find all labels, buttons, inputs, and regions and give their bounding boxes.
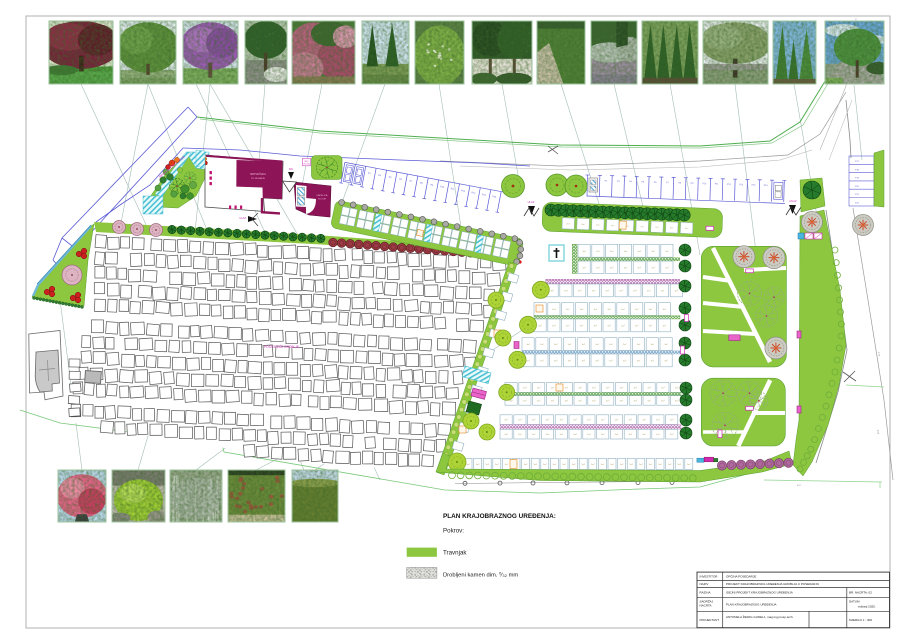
svg-text:3m²: 3m² — [543, 463, 547, 466]
svg-text:3m²: 3m² — [658, 463, 662, 466]
svg-text:3m²: 3m² — [537, 399, 541, 402]
svg-text:2m²: 2m² — [670, 226, 674, 229]
svg-text:3m²: 3m² — [504, 419, 508, 422]
svg-text:3m²: 3m² — [647, 399, 651, 402]
svg-text:3m²: 3m² — [573, 419, 577, 422]
svg-text:3m²: 3m² — [582, 266, 586, 269]
svg-text:3m²: 3m² — [665, 250, 669, 253]
svg-text:3m²: 3m² — [651, 250, 655, 253]
svg-text:3m²: 3m² — [687, 463, 691, 466]
svg-text:PROJEKTANT: PROJEKTANT — [700, 618, 720, 622]
svg-text:3m²: 3m² — [568, 343, 572, 346]
svg-text:3m²: 3m² — [560, 419, 564, 422]
svg-text:3m²: 3m² — [675, 399, 679, 402]
svg-text:3m²: 3m² — [615, 419, 619, 422]
svg-text:3m²: 3m² — [537, 387, 541, 390]
svg-text:3m²: 3m² — [637, 359, 641, 362]
svg-text:NACRTA: NACRTA — [700, 604, 712, 608]
svg-text:3m²: 3m² — [634, 399, 638, 402]
svg-text:PO SEDARJE: PO SEDARJE — [251, 177, 265, 180]
svg-text:2m²: 2m² — [640, 225, 644, 228]
svg-text:3m²: 3m² — [551, 399, 555, 402]
svg-text:3m²: 3m² — [540, 359, 544, 362]
svg-text:3m²: 3m² — [642, 419, 646, 422]
svg-text:3m²: 3m² — [578, 289, 582, 292]
svg-text:3m²: 3m² — [610, 266, 614, 269]
svg-text:BR. NACRTA: 02: BR. NACRTA: 02 — [849, 591, 872, 595]
svg-text:3m²: 3m² — [621, 308, 625, 311]
svg-text:3m²: 3m² — [546, 433, 550, 436]
svg-text:3m²: 3m² — [610, 250, 614, 253]
svg-text:IZLAZ: IZLAZ — [789, 199, 796, 203]
svg-text:3m²: 3m² — [656, 419, 660, 422]
svg-text:3m²: 3m² — [629, 463, 633, 466]
svg-text:3m²: 3m² — [581, 463, 585, 466]
svg-text:3m²: 3m² — [518, 433, 522, 436]
svg-text:2m²: 2m² — [596, 224, 600, 227]
svg-text:IDEJNI PROJEKT KRAJOBRAZNOG UR: IDEJNI PROJEKT KRAJOBRAZNOG UREĐENJA — [726, 591, 793, 595]
svg-text:3m²: 3m² — [546, 419, 550, 422]
svg-text:NAZIV: NAZIV — [700, 582, 709, 586]
svg-text:3m²: 3m² — [607, 308, 611, 311]
svg-text:3m²: 3m² — [661, 387, 665, 390]
svg-text:3m²: 3m² — [675, 289, 679, 292]
svg-text:3m²: 3m² — [661, 289, 665, 292]
svg-text:3m²: 3m² — [485, 463, 489, 466]
svg-text:3m²: 3m² — [601, 419, 605, 422]
svg-text:3m²: 3m² — [606, 387, 610, 390]
svg-text:3m²: 3m² — [601, 433, 605, 436]
svg-text:3m²: 3m² — [623, 343, 627, 346]
svg-text:3m²: 3m² — [661, 399, 665, 402]
svg-text:3m²: 3m² — [615, 433, 619, 436]
svg-text:3m²: 3m² — [647, 387, 651, 390]
svg-text:3m²: 3m² — [550, 289, 554, 292]
svg-text:3m²: 3m² — [629, 433, 633, 436]
svg-text:3m²: 3m² — [533, 463, 537, 466]
svg-text:3m²: 3m² — [564, 289, 568, 292]
svg-text:3m²: 3m² — [624, 250, 628, 253]
svg-text:3m²: 3m² — [677, 463, 681, 466]
svg-text:3m²: 3m² — [624, 266, 628, 269]
svg-text:3m²: 3m² — [587, 419, 591, 422]
svg-text:MJERILO 1 : 300: MJERILO 1 : 300 — [849, 618, 872, 622]
svg-text:3m²: 3m² — [621, 324, 625, 327]
svg-text:3m²: 3m² — [573, 433, 577, 436]
svg-text:3m²: 3m² — [595, 343, 599, 346]
svg-text:3m²: 3m² — [663, 308, 667, 311]
svg-text:3m²: 3m² — [554, 343, 558, 346]
svg-text:INVESTITOR: INVESTITOR — [700, 575, 719, 579]
svg-text:3m²: 3m² — [568, 359, 572, 362]
svg-text:3m²: 3m² — [592, 399, 596, 402]
svg-text:3m²: 3m² — [553, 463, 557, 466]
svg-text:3m²: 3m² — [562, 463, 566, 466]
svg-text:3m²: 3m² — [642, 433, 646, 436]
svg-text:3m²: 3m² — [578, 387, 582, 390]
svg-text:3m²: 3m² — [518, 419, 522, 422]
svg-text:SV. DUH: SV. DUH — [318, 199, 326, 201]
svg-text:3m²: 3m² — [591, 463, 595, 466]
svg-text:3m²: 3m² — [610, 463, 614, 466]
svg-text:3m²: 3m² — [566, 308, 570, 311]
svg-text:3m²: 3m² — [587, 433, 591, 436]
svg-text:PROJEKT KRAJOBRAZNOG UREĐENJA: PROJEKT KRAJOBRAZNOG UREĐENJA GROBLJA U … — [726, 582, 819, 586]
svg-text:Travnjak: Travnjak — [443, 550, 467, 557]
svg-text:3m²: 3m² — [476, 463, 480, 466]
svg-text:3m²: 3m² — [565, 399, 569, 402]
svg-text:3m²: 3m² — [665, 266, 669, 269]
svg-text:3m²: 3m² — [560, 433, 564, 436]
svg-text:MRTVAČNICA: MRTVAČNICA — [250, 173, 266, 176]
svg-text:3m²: 3m² — [495, 463, 499, 466]
svg-text:ANTONELA ŽERJG GUDELJ, mag.ing: ANTONELA ŽERJG GUDELJ, mag.ing.prosp.arc… — [726, 614, 794, 619]
svg-text:PLAN KRAJOBRAZNOG UREĐENJA: PLAN KRAJOBRAZNOG UREĐENJA — [726, 603, 777, 607]
svg-text:3m²: 3m² — [638, 250, 642, 253]
svg-text:3m²: 3m² — [572, 463, 576, 466]
svg-text:3m²: 3m² — [580, 324, 584, 327]
svg-text:3m²: 3m² — [552, 324, 556, 327]
svg-text:3m²: 3m² — [566, 324, 570, 327]
svg-text:3m²: 3m² — [595, 359, 599, 362]
svg-text:3m²: 3m² — [651, 359, 655, 362]
svg-text:3m²: 3m² — [649, 463, 653, 466]
svg-text:3m²: 3m² — [635, 308, 639, 311]
svg-text:3m²: 3m² — [594, 324, 598, 327]
svg-text:3m²: 3m² — [504, 433, 508, 436]
svg-text:3m²: 3m² — [664, 359, 668, 362]
svg-text:3m²: 3m² — [580, 308, 584, 311]
svg-text:3m²: 3m² — [524, 463, 528, 466]
svg-text:2m²: 2m² — [611, 224, 615, 227]
svg-text:3m²: 3m² — [582, 359, 586, 362]
svg-text:3m²: 3m² — [619, 289, 623, 292]
svg-text:3m²: 3m² — [651, 343, 655, 346]
svg-text:3m²: 3m² — [523, 399, 527, 402]
svg-text:3m²: 3m² — [670, 433, 674, 436]
svg-text:3m²: 3m² — [647, 289, 651, 292]
svg-text:2m²: 2m² — [566, 222, 570, 225]
svg-text:3m²: 3m² — [609, 343, 613, 346]
svg-text:3m²: 3m² — [532, 419, 536, 422]
svg-text:3m²: 3m² — [601, 463, 605, 466]
svg-text:POSTOJEĆE GROBLJE: POSTOJEĆE GROBLJE — [264, 344, 299, 349]
svg-text:3m²: 3m² — [526, 343, 530, 346]
svg-text:3m²: 3m² — [620, 463, 624, 466]
svg-text:3m²: 3m² — [565, 387, 569, 390]
svg-text:3m²: 3m² — [540, 343, 544, 346]
svg-text:3m²: 3m² — [656, 433, 660, 436]
svg-text:3m²: 3m² — [620, 387, 624, 390]
svg-text:3m²: 3m² — [620, 399, 624, 402]
svg-text:WC: WC — [289, 167, 293, 171]
svg-text:3m²: 3m² — [582, 343, 586, 346]
svg-text:3m²: 3m² — [505, 463, 509, 466]
svg-text:3m²: 3m² — [523, 387, 527, 390]
svg-text:3m²: 3m² — [532, 433, 536, 436]
svg-text:2m²: 2m² — [581, 223, 585, 226]
svg-text:Drobljeni kamen dim. ⁰⁄₃₂ mm: Drobljeni kamen dim. ⁰⁄₃₂ mm — [443, 572, 518, 579]
svg-text:3m²: 3m² — [664, 343, 668, 346]
svg-text:3m²: 3m² — [606, 289, 610, 292]
svg-text:3m²: 3m² — [551, 387, 555, 390]
svg-text:3m²: 3m² — [578, 399, 582, 402]
svg-text:3m²: 3m² — [623, 359, 627, 362]
svg-text:3m²: 3m² — [651, 266, 655, 269]
svg-text:3m²: 3m² — [592, 289, 596, 292]
svg-text:3m²: 3m² — [639, 463, 643, 466]
svg-text:KAPELICA: KAPELICA — [317, 194, 328, 197]
svg-text:3m²: 3m² — [526, 359, 530, 362]
svg-text:DATUM: DATUM — [849, 600, 860, 604]
svg-text:3m²: 3m² — [670, 419, 674, 422]
svg-text:RAZINA: RAZINA — [700, 591, 711, 595]
svg-text:3m²: 3m² — [675, 387, 679, 390]
svg-text:3m²: 3m² — [594, 308, 598, 311]
svg-text:3m²: 3m² — [592, 387, 596, 390]
svg-text:3m²: 3m² — [596, 266, 600, 269]
svg-text:ULAZ: ULAZ — [239, 216, 246, 220]
svg-text:PLOČA: PLOČA — [303, 163, 310, 166]
svg-text:PLAN KRAJOBRAZNOG UREĐENJA:: PLAN KRAJOBRAZNOG UREĐENJA: — [443, 513, 556, 520]
svg-text:OPĆINA POSEDARJE: OPĆINA POSEDARJE — [726, 574, 756, 579]
svg-text:3m²: 3m² — [649, 308, 653, 311]
svg-text:2m²: 2m² — [655, 226, 659, 229]
svg-text:3m²: 3m² — [582, 250, 586, 253]
svg-text:3m²: 3m² — [629, 419, 633, 422]
svg-text:3m²: 3m² — [554, 359, 558, 362]
svg-text:3m²: 3m² — [466, 463, 470, 466]
svg-text:3m²: 3m² — [668, 463, 672, 466]
svg-text:3m²: 3m² — [552, 308, 556, 311]
svg-text:3m²: 3m² — [635, 324, 639, 327]
svg-text:ULAZ: ULAZ — [528, 200, 535, 204]
svg-text:svibanj 2025.: svibanj 2025. — [858, 605, 876, 609]
svg-text:3m²: 3m² — [634, 387, 638, 390]
svg-text:3m²: 3m² — [633, 289, 637, 292]
svg-text:3m²: 3m² — [637, 343, 641, 346]
svg-text:3m²: 3m² — [607, 324, 611, 327]
svg-text:2m²: 2m² — [685, 227, 689, 230]
svg-text:3m²: 3m² — [649, 324, 653, 327]
svg-text:3m²: 3m² — [596, 250, 600, 253]
svg-text:Pokrov:: Pokrov: — [443, 528, 464, 535]
svg-text:3m²: 3m² — [538, 324, 542, 327]
svg-text:3m²: 3m² — [663, 324, 667, 327]
svg-text:3m²: 3m² — [609, 359, 613, 362]
svg-text:3m²: 3m² — [638, 266, 642, 269]
svg-text:3m²: 3m² — [606, 399, 610, 402]
